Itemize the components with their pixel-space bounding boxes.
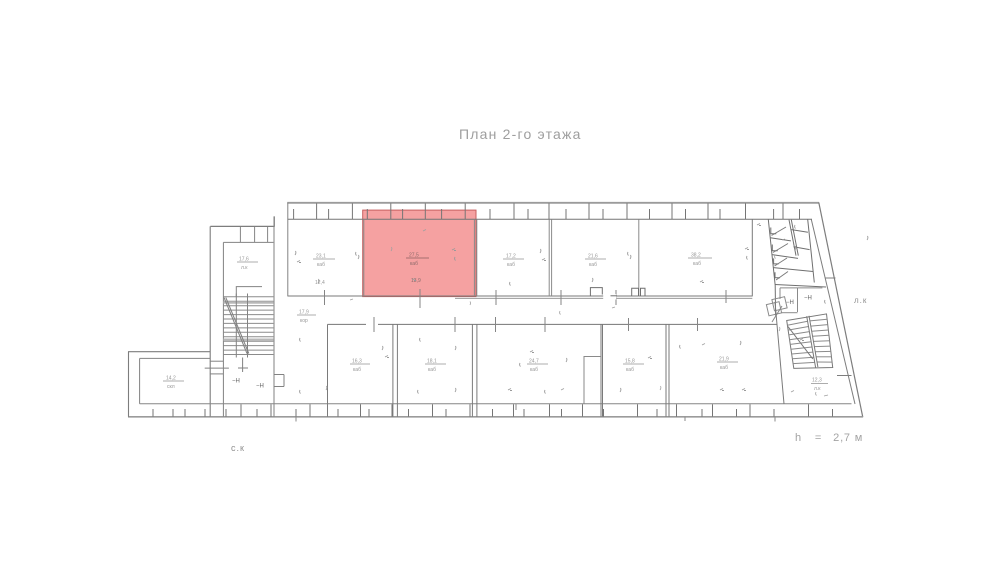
svg-text:−Н: −Н [232, 379, 240, 385]
svg-text:каб: каб [530, 367, 538, 373]
svg-text:21,9: 21,9 [719, 357, 729, 363]
svg-text:12,3: 12,3 [812, 378, 822, 384]
svg-text:15,8: 15,8 [625, 359, 635, 365]
svg-text:План 2-го этажа: План 2-го этажа [459, 126, 582, 142]
svg-text:л.к: л.к [814, 386, 821, 392]
svg-text:каб: каб [428, 367, 436, 373]
svg-text:−Н: −Н [804, 296, 812, 302]
svg-text:скл: скл [167, 384, 175, 390]
svg-text:−Н: −Н [256, 384, 264, 390]
svg-text:каб: каб [410, 261, 418, 267]
svg-text:17,2: 17,2 [506, 254, 516, 260]
svg-text:каб: каб [626, 367, 634, 373]
svg-text:кор: кор [300, 318, 308, 324]
svg-text:с.к: с.к [231, 443, 245, 453]
svg-text:21,6: 21,6 [588, 254, 598, 260]
svg-text:л.к: л.к [854, 296, 867, 305]
svg-text:17,9: 17,9 [299, 310, 309, 316]
svg-text:каб: каб [353, 367, 361, 373]
svg-text:24,7: 24,7 [529, 359, 539, 365]
svg-text:каб: каб [720, 365, 728, 371]
svg-text:14,2: 14,2 [166, 376, 176, 382]
svg-text:каб: каб [507, 262, 515, 268]
svg-text:27,5: 27,5 [409, 253, 419, 259]
svg-text:17,6: 17,6 [239, 257, 249, 263]
svg-text:каб: каб [589, 262, 597, 268]
svg-text:12,4: 12,4 [315, 280, 325, 286]
svg-text:каб: каб [317, 262, 325, 268]
svg-text:23,1: 23,1 [316, 254, 326, 260]
svg-text:38,2: 38,2 [691, 253, 701, 259]
svg-text:13,9: 13,9 [411, 278, 421, 284]
svg-text:16,3: 16,3 [352, 359, 362, 365]
svg-text:18,1: 18,1 [427, 359, 437, 365]
svg-text:каб: каб [693, 261, 701, 267]
svg-text:−Н: −Н [786, 300, 794, 306]
svg-text:л.к: л.к [241, 265, 248, 271]
